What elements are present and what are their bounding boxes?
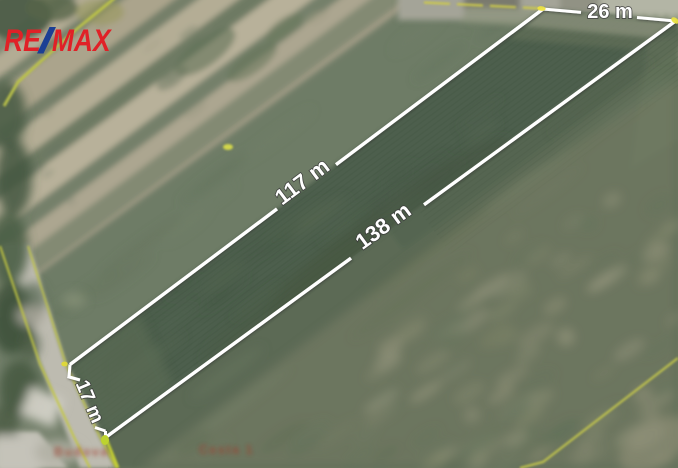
svg-text:Budova: Budova [54,445,109,459]
svg-text:Cesta 1: Cesta 1 [199,443,254,457]
svg-text:26 m: 26 m [587,1,633,23]
svg-text:RE: RE [4,24,42,59]
svg-text:MAX: MAX [52,24,112,59]
